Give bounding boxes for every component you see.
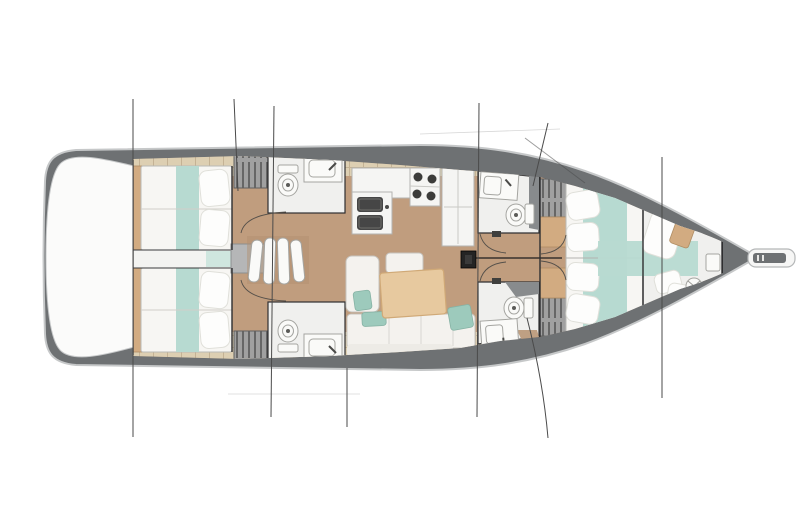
pillow — [566, 222, 600, 252]
stern-transom — [46, 157, 134, 357]
cushion — [447, 304, 474, 331]
aft-head-port — [268, 154, 345, 213]
step — [263, 238, 276, 284]
burner-icon — [414, 173, 423, 182]
pillow — [198, 169, 231, 208]
burner-icon — [413, 190, 422, 199]
washbasin — [479, 172, 519, 201]
companionway-steps — [247, 236, 309, 284]
pillow — [565, 188, 601, 221]
pillow — [198, 311, 230, 349]
berth-headboard — [540, 268, 566, 298]
cushion — [353, 290, 372, 311]
forward-head-port — [478, 171, 539, 233]
floorplan-svg — [0, 0, 800, 505]
interior — [133, 150, 723, 362]
pillow — [566, 262, 600, 292]
toilet-drain — [512, 306, 516, 310]
toilet-tank — [278, 344, 298, 352]
pillow — [565, 292, 601, 325]
hanging-locker — [234, 152, 270, 188]
saloon-table — [380, 269, 447, 318]
roller-pin — [757, 255, 759, 261]
hanging-locker — [234, 331, 270, 361]
bow-washbasin — [706, 254, 720, 271]
step — [277, 238, 290, 284]
corridor-mat — [206, 251, 231, 267]
burner-icon — [427, 192, 436, 201]
toilet-drain — [286, 329, 290, 333]
toilet-drain — [286, 183, 290, 187]
pillow — [198, 209, 230, 247]
sofa-top-seat — [386, 253, 423, 273]
berth-headboard — [540, 217, 566, 247]
pillow — [198, 271, 231, 310]
faucet-icon — [385, 205, 389, 209]
lifeline — [420, 129, 560, 134]
yacht-floorplan-image — [0, 0, 800, 505]
berth-runner — [176, 166, 199, 250]
burner-icon — [428, 175, 437, 184]
washbasin-unit — [479, 172, 519, 201]
hanging-locker — [539, 298, 566, 336]
bowsprit — [748, 249, 795, 267]
door-frame — [492, 278, 501, 284]
toilet-tank — [524, 298, 533, 318]
roller-pin — [762, 255, 764, 261]
mast-core — [465, 255, 472, 264]
aft-head-starboard — [268, 302, 345, 362]
aft-cabin-starboard — [133, 268, 232, 352]
door-frame — [492, 231, 501, 237]
hanging-locker — [539, 179, 566, 217]
toilet-tank — [278, 165, 298, 173]
toilet-tank — [525, 204, 534, 224]
aft-cabin-port — [133, 166, 232, 250]
toilet-drain — [514, 213, 518, 217]
